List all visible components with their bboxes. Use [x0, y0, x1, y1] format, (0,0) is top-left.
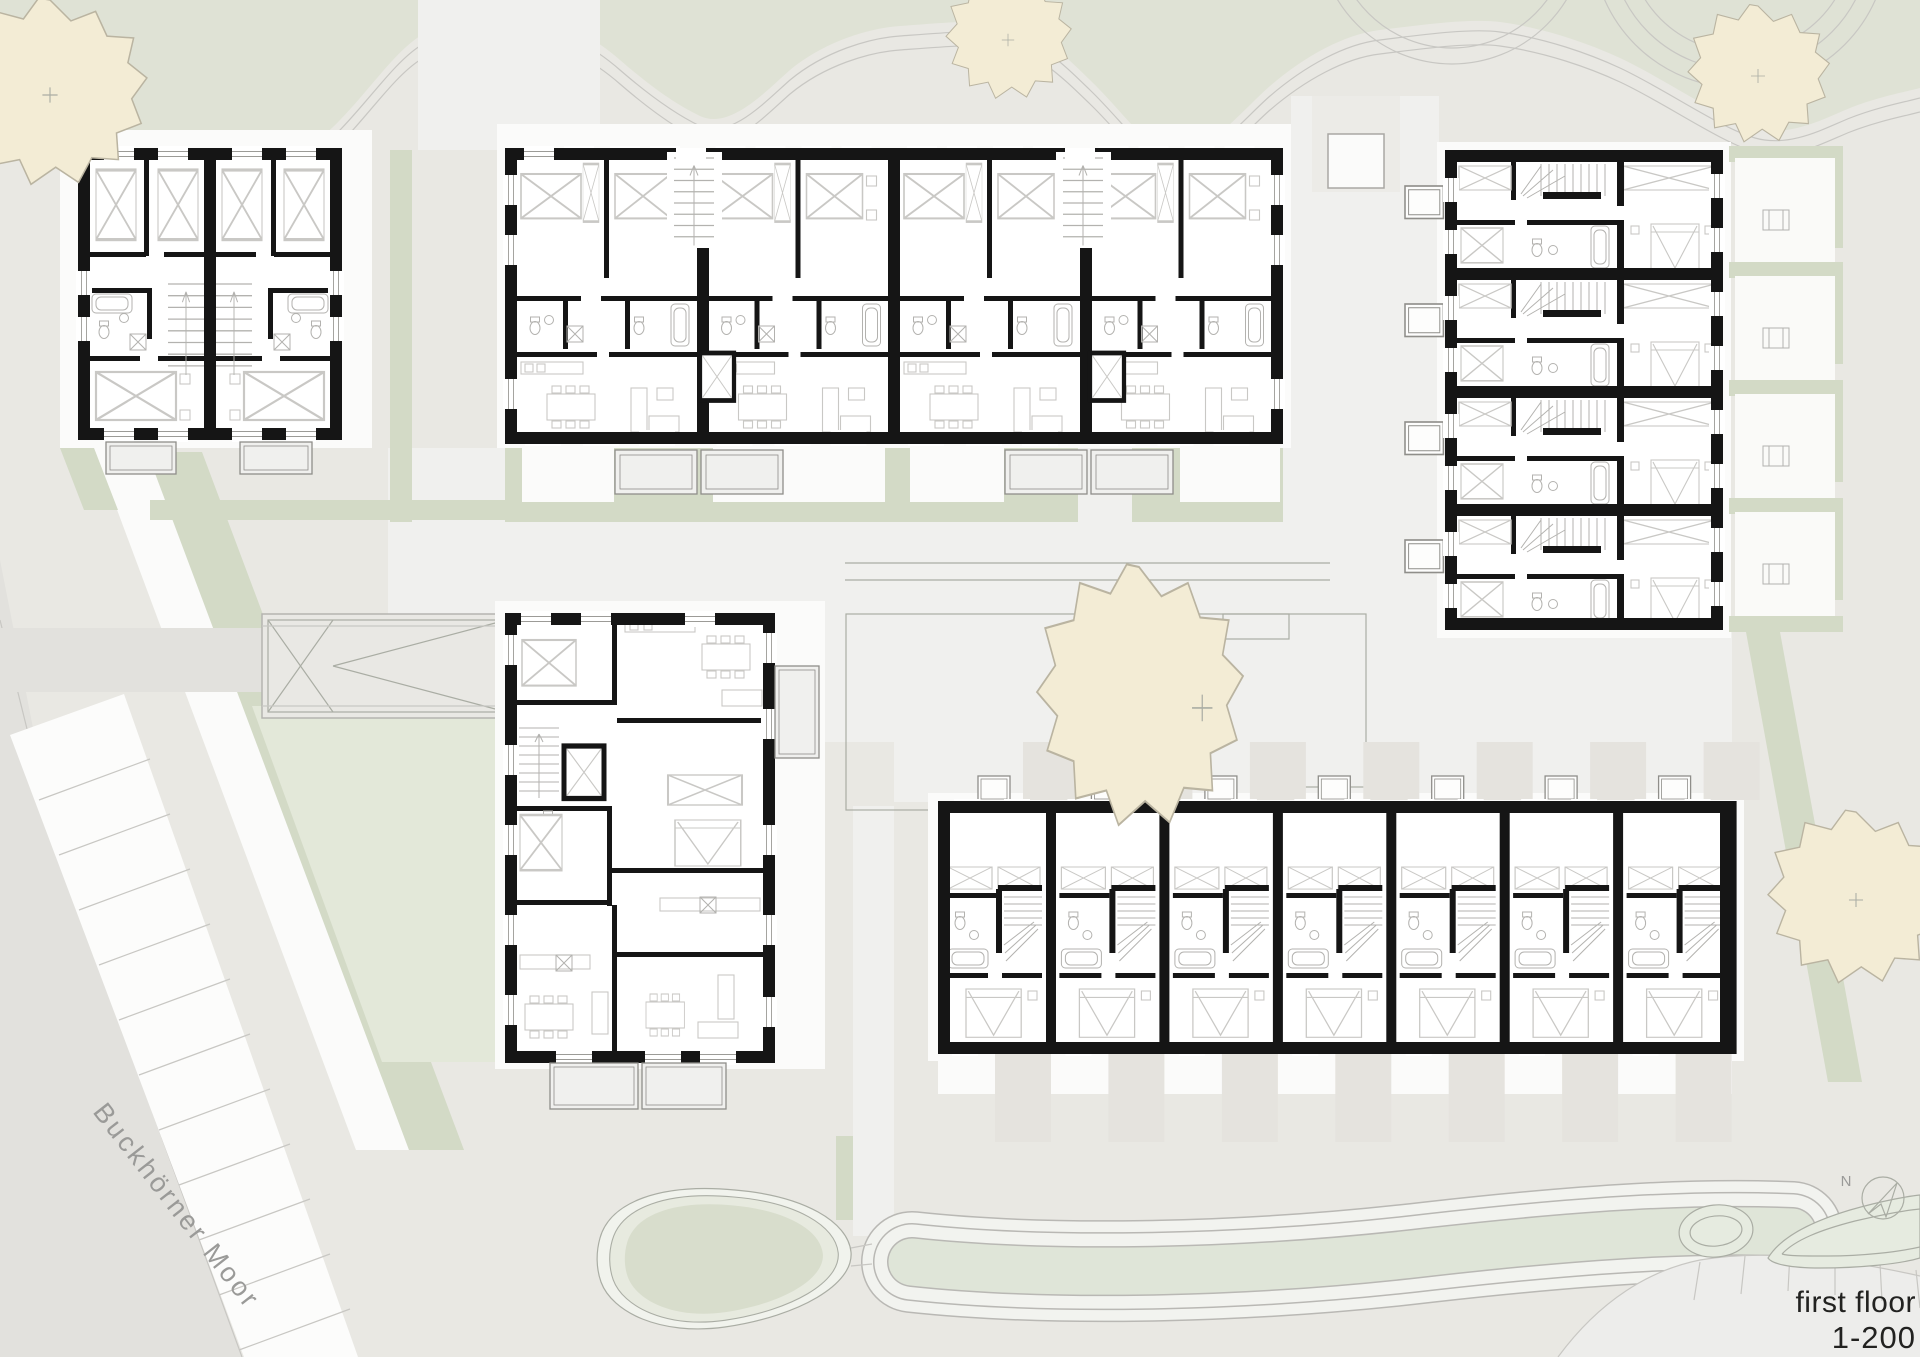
north-label: N: [1841, 1173, 1852, 1190]
drawing-scale: 1-200: [1832, 1320, 1916, 1355]
middle-balcony: [775, 666, 819, 758]
building-slab: [503, 146, 1285, 522]
building-middle: [503, 611, 819, 1109]
south-greenway: [912, 1231, 1792, 1271]
south-footpath: [853, 806, 894, 1236]
drawing-title: first floor: [1795, 1286, 1916, 1319]
middle-terraces: [550, 1063, 726, 1109]
carport: [262, 614, 505, 718]
hedge-duplex-east: [390, 150, 412, 522]
hedge-cross-strip: [150, 500, 506, 520]
shed: [1312, 96, 1400, 192]
hedge-pond: [836, 1136, 853, 1220]
site-plan-canvas: Buckhörner Moor N first floor 1-200: [0, 0, 1920, 1357]
building-duplex: [76, 146, 344, 474]
driveway: [0, 628, 264, 692]
southeast-path: [1445, 630, 1732, 742]
